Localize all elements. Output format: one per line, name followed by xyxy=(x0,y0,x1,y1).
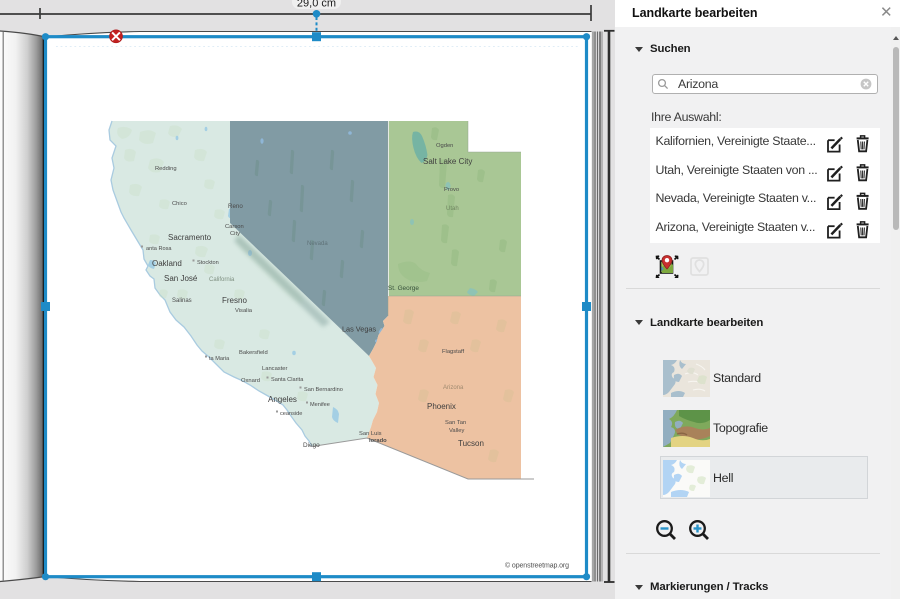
svg-text:Bakersfield: Bakersfield xyxy=(239,350,268,356)
svg-text:ta Maria: ta Maria xyxy=(209,356,230,362)
svg-text:Reno: Reno xyxy=(228,203,243,210)
svg-text:Salinas: Salinas xyxy=(172,298,192,304)
svg-text:Valley: Valley xyxy=(449,428,464,434)
svg-text:Stockton: Stockton xyxy=(197,260,219,266)
svg-text:Las Vegas: Las Vegas xyxy=(342,325,376,334)
svg-text:San Luis: San Luis xyxy=(359,431,382,437)
svg-text:Salt Lake City: Salt Lake City xyxy=(423,157,472,166)
svg-text:Chico: Chico xyxy=(172,201,187,207)
svg-text:Flagstaff: Flagstaff xyxy=(442,349,465,355)
svg-text:St. George: St. George xyxy=(388,285,419,292)
svg-text:Carson: Carson xyxy=(225,224,244,230)
svg-text:Phoenix: Phoenix xyxy=(427,402,456,411)
svg-text:San Bernardino: San Bernardino xyxy=(304,387,343,393)
svg-text:© openstreetmap.org: © openstreetmap.org xyxy=(505,562,569,570)
svg-text:Diego: Diego xyxy=(303,442,320,449)
svg-text:Oxnard: Oxnard xyxy=(241,378,260,384)
svg-text:Santa Clarita: Santa Clarita xyxy=(271,377,304,383)
svg-text:Provo: Provo xyxy=(444,187,459,193)
svg-text:City: City xyxy=(230,231,240,237)
svg-text:Redding: Redding xyxy=(155,166,177,172)
svg-text:ceanside: ceanside xyxy=(280,411,302,417)
svg-text:Tucson: Tucson xyxy=(458,439,484,448)
svg-text:San Tan: San Tan xyxy=(445,420,466,426)
svg-text:Nevada: Nevada xyxy=(307,241,328,247)
svg-text:Sacramento: Sacramento xyxy=(168,233,212,242)
svg-text:Arizona: Arizona xyxy=(443,385,464,391)
svg-text:anta Rosa: anta Rosa xyxy=(146,246,172,252)
svg-text:Oakland: Oakland xyxy=(152,259,182,268)
svg-text:Ogden: Ogden xyxy=(436,143,453,149)
svg-text:Fresno: Fresno xyxy=(222,296,247,305)
svg-text:Visalia: Visalia xyxy=(235,308,253,314)
svg-text:Angeles: Angeles xyxy=(268,395,297,404)
svg-text:lorado: lorado xyxy=(369,438,387,444)
svg-text:Menifee: Menifee xyxy=(310,402,330,408)
svg-text:California: California xyxy=(209,277,235,283)
svg-text:San José: San José xyxy=(164,274,198,283)
svg-text:29,0 cm: 29,0 cm xyxy=(297,0,336,10)
svg-text:Lancaster: Lancaster xyxy=(262,366,288,372)
svg-text:Utah: Utah xyxy=(446,206,459,212)
